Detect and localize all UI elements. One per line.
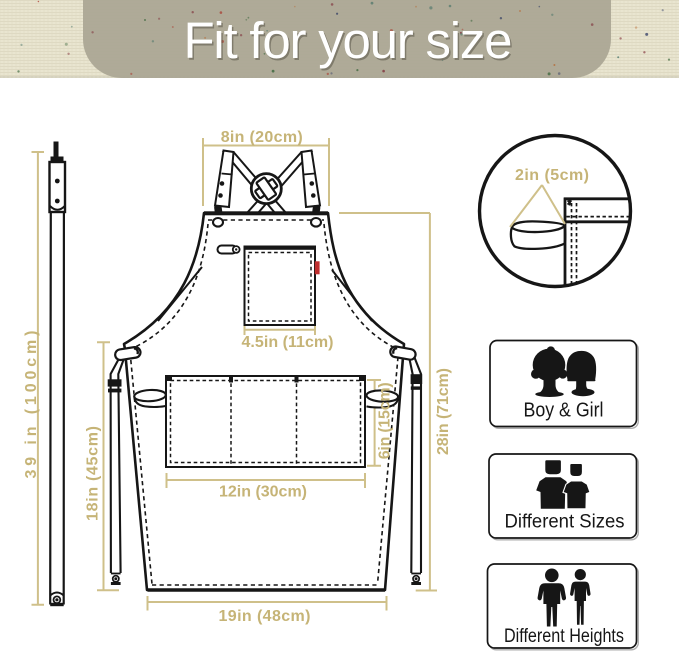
- svg-text:Different Heights: Different Heights: [504, 625, 624, 647]
- svg-text:12in (30cm): 12in (30cm): [219, 484, 307, 501]
- svg-text:Boy & Girl: Boy & Girl: [524, 400, 604, 422]
- svg-text:Different Sizes: Different Sizes: [505, 511, 625, 533]
- svg-text:8in (20cm): 8in (20cm): [221, 129, 303, 146]
- svg-text:Fit for your size: Fit for your size: [184, 12, 513, 69]
- svg-text:6in (15cm): 6in (15cm): [377, 382, 394, 459]
- svg-text:2in (5cm): 2in (5cm): [515, 167, 589, 184]
- svg-text:18in (45cm): 18in (45cm): [85, 426, 102, 521]
- svg-text:28in (71cm): 28in (71cm): [435, 368, 452, 455]
- svg-text:4.5in (11cm): 4.5in (11cm): [242, 334, 334, 351]
- svg-text:19in (48cm): 19in (48cm): [219, 608, 311, 625]
